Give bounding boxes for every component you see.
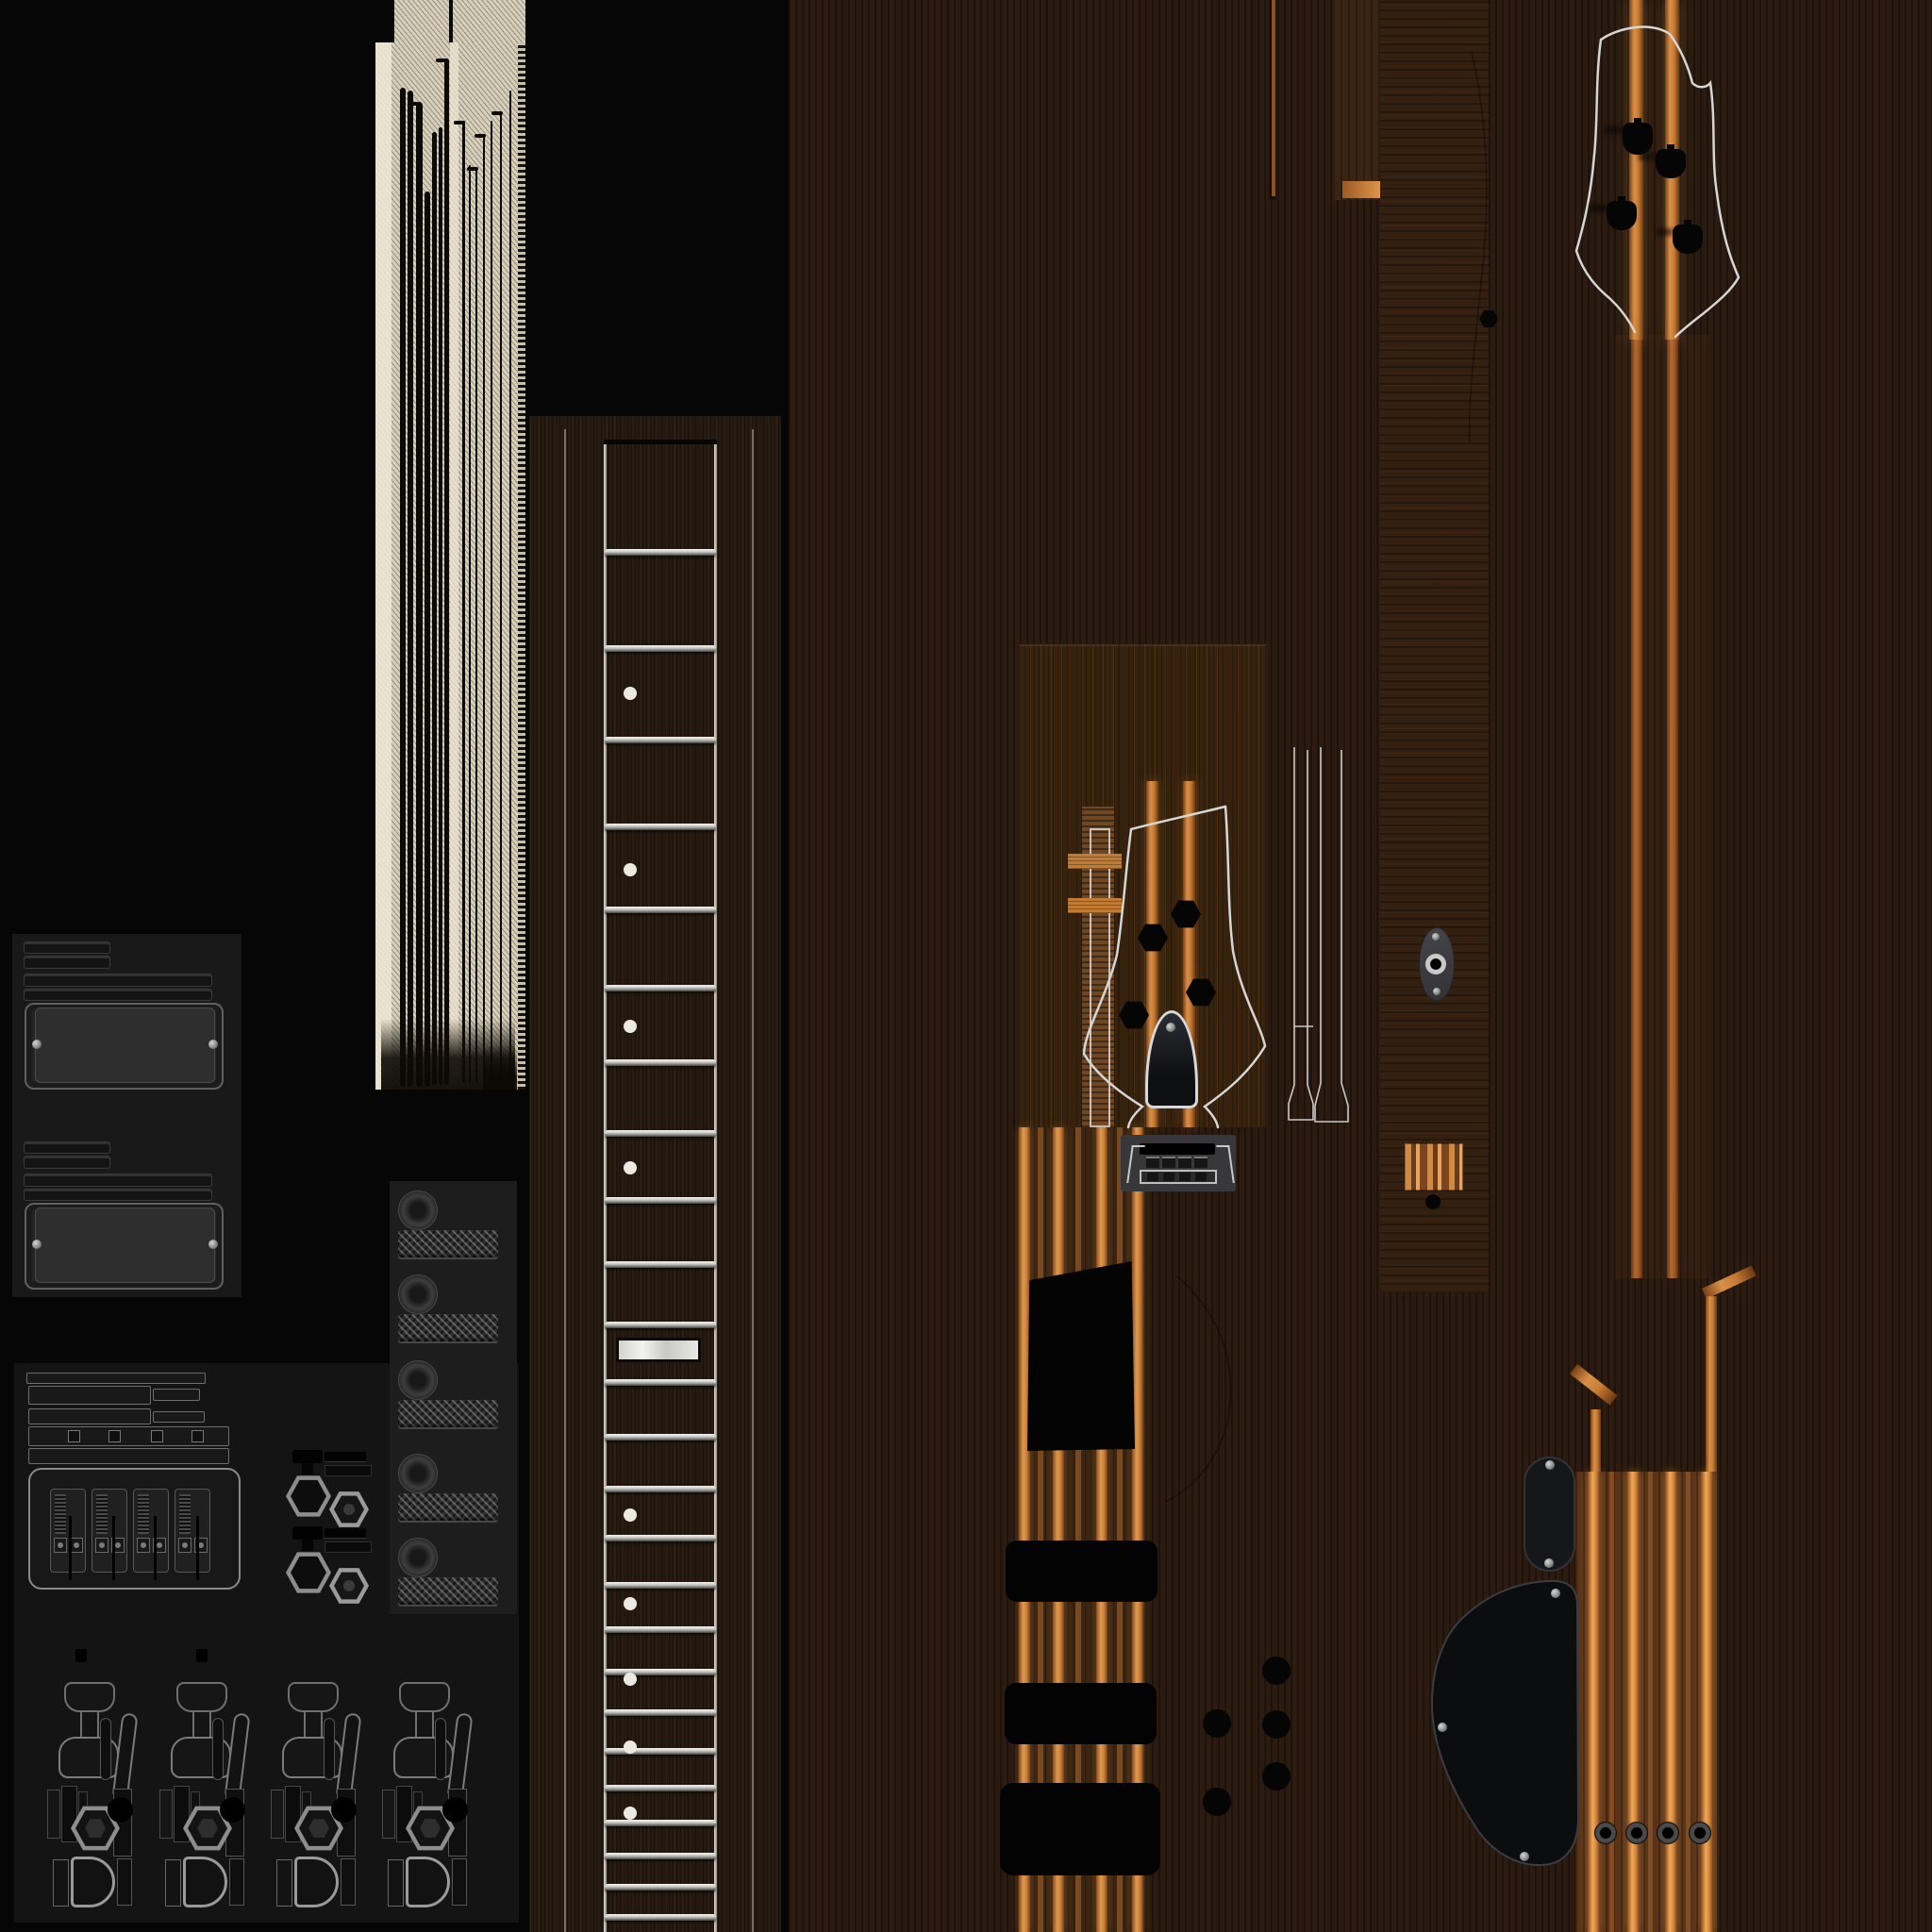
fret bbox=[605, 737, 716, 743]
string bbox=[483, 134, 485, 1083]
knob-knurl bbox=[398, 1493, 498, 1521]
laminate-stripe-dim bbox=[1648, 1472, 1653, 1932]
tuner-wing-top bbox=[176, 1682, 227, 1712]
patch-dot bbox=[1425, 1194, 1441, 1209]
saddle-screw-dot bbox=[99, 1542, 105, 1548]
tuner-base-block bbox=[388, 1859, 404, 1907]
panel-seam bbox=[1140, 644, 1141, 1127]
template-narrow-outline bbox=[1090, 828, 1110, 1127]
string bbox=[432, 132, 437, 1085]
tuner-base-block bbox=[276, 1859, 292, 1907]
wood-seam-orange bbox=[1272, 0, 1275, 196]
tuner-post-hole bbox=[331, 1797, 357, 1823]
string bbox=[462, 121, 465, 1083]
pickup-cover-face bbox=[35, 1008, 215, 1083]
bridge-string bbox=[154, 1516, 157, 1580]
tuner-pill bbox=[212, 1718, 224, 1780]
tuner-post-hole bbox=[220, 1797, 245, 1823]
crossband-bar bbox=[1068, 854, 1122, 869]
screw bbox=[32, 1240, 42, 1249]
pot-hole bbox=[1203, 1709, 1231, 1738]
fret bbox=[605, 1486, 716, 1492]
tuner-base-block bbox=[165, 1859, 181, 1907]
string bbox=[469, 165, 471, 1083]
laminate-hook-vertical bbox=[1706, 1296, 1717, 1477]
nut-side-bar bbox=[325, 1452, 366, 1462]
strings-serrated-edge bbox=[518, 42, 525, 1090]
pickup-side-bar bbox=[24, 974, 212, 987]
tuner-wing-top bbox=[288, 1682, 339, 1712]
laminate-stripe-dim bbox=[1686, 1472, 1690, 1932]
fret bbox=[605, 1197, 716, 1204]
fret bbox=[605, 1130, 716, 1137]
screw bbox=[1438, 1723, 1447, 1732]
tuner-waist bbox=[304, 1712, 323, 1737]
pot-hole bbox=[1203, 1788, 1231, 1816]
strings-center-band bbox=[450, 42, 458, 1090]
saddle-spring bbox=[55, 1494, 66, 1534]
bridge-part-notch bbox=[192, 1430, 204, 1442]
screw bbox=[1432, 933, 1440, 941]
fret bbox=[605, 1322, 716, 1328]
screw bbox=[1433, 988, 1441, 995]
tuner-button bbox=[1607, 201, 1637, 230]
string-ferrule bbox=[1594, 1822, 1617, 1844]
fret bbox=[605, 907, 716, 913]
string bbox=[491, 121, 492, 1083]
fret bbox=[605, 1820, 716, 1826]
fret bbox=[605, 1535, 716, 1541]
bridge-string bbox=[112, 1516, 115, 1580]
strings-top-divider bbox=[449, 0, 453, 43]
pickup-route bbox=[1000, 1783, 1160, 1875]
tuner-waist bbox=[80, 1712, 99, 1737]
string bbox=[439, 127, 442, 1085]
bridge-tail-bump bbox=[1147, 1173, 1158, 1181]
bridge-part-tab bbox=[153, 1411, 205, 1423]
fret bbox=[605, 1434, 716, 1441]
bridge-part-tab bbox=[153, 1389, 200, 1401]
nut-side-bar bbox=[325, 1465, 372, 1476]
fret bbox=[605, 1626, 716, 1633]
pickup-side-bar bbox=[24, 1189, 212, 1201]
saddle-screw-dot bbox=[115, 1542, 121, 1548]
pickup-route bbox=[1005, 1683, 1157, 1744]
knob-top bbox=[398, 1191, 438, 1230]
knob-top bbox=[398, 1360, 438, 1400]
string bbox=[475, 167, 477, 1083]
screw bbox=[1520, 1852, 1529, 1861]
fret bbox=[605, 1582, 716, 1589]
string bbox=[500, 111, 502, 1083]
screw bbox=[1551, 1589, 1560, 1598]
neck-heel-panel bbox=[1020, 644, 1266, 1127]
bridge-string bbox=[196, 1516, 199, 1580]
laminate-stripe-bright bbox=[1588, 1472, 1600, 1932]
tuner-button bbox=[1673, 225, 1703, 254]
fret bbox=[605, 824, 716, 830]
laminate-stripe-bright bbox=[1627, 1472, 1640, 1932]
screw bbox=[208, 1040, 218, 1049]
body-wood-base bbox=[789, 0, 1932, 1932]
string bbox=[509, 91, 511, 1083]
jack-nut bbox=[1425, 954, 1446, 974]
crossband-bar bbox=[1068, 898, 1122, 913]
bridge-part-bar bbox=[28, 1408, 151, 1424]
panel-seam bbox=[1118, 644, 1119, 1127]
inlay-dot bbox=[624, 687, 637, 700]
bridge-saddle-block bbox=[1162, 1157, 1175, 1168]
bridge-string bbox=[69, 1516, 72, 1580]
laminate-stripe-bright bbox=[1701, 1472, 1713, 1932]
string-stub bbox=[196, 1649, 208, 1662]
neck-laminate-stripe bbox=[1667, 335, 1678, 1278]
bridge-part-bar bbox=[26, 1373, 206, 1384]
fret bbox=[605, 1379, 716, 1386]
string bbox=[444, 58, 449, 1085]
fret bbox=[605, 1785, 716, 1791]
fret bbox=[605, 1884, 716, 1890]
bridge-tail-bump bbox=[1163, 1173, 1174, 1181]
tuner-button-shadow bbox=[1657, 228, 1673, 236]
truss-access-pill bbox=[1524, 1457, 1575, 1572]
fret bbox=[605, 1853, 716, 1859]
inlay-dot bbox=[624, 1597, 637, 1610]
pickup-side-bar bbox=[24, 941, 110, 954]
bridge-part-bar bbox=[28, 1386, 151, 1405]
inlay-dot bbox=[624, 1020, 637, 1033]
saddle-screw-dot bbox=[141, 1542, 146, 1548]
bridge-part-notch bbox=[108, 1430, 121, 1442]
fretboard-edge-line bbox=[564, 429, 566, 1932]
string-ferrule bbox=[1657, 1822, 1679, 1844]
wood-inlay-patch bbox=[1405, 1143, 1463, 1191]
texture-atlas bbox=[0, 0, 1932, 1932]
tuner-gear-block bbox=[382, 1790, 395, 1839]
bridge-saddle-block bbox=[1178, 1157, 1191, 1168]
screw bbox=[1545, 1460, 1555, 1470]
string-ferrule bbox=[1689, 1822, 1711, 1844]
bridge-saddle-block bbox=[1194, 1157, 1207, 1168]
tuner-base-block bbox=[117, 1858, 132, 1906]
neck-laminate-glow bbox=[1615, 335, 1709, 1278]
string bbox=[408, 91, 413, 1087]
knob-top bbox=[398, 1454, 438, 1493]
knob-knurl bbox=[398, 1400, 498, 1427]
neck-laminate-stripe bbox=[1631, 335, 1642, 1278]
fretboard-edge-line bbox=[752, 429, 754, 1932]
hex-washer-hole bbox=[343, 1580, 355, 1591]
string bbox=[400, 88, 406, 1087]
inlay-dot bbox=[624, 1673, 637, 1686]
pickup-side-bar bbox=[24, 1156, 110, 1169]
inlay-dot bbox=[624, 1508, 637, 1522]
saddle-screw-dot bbox=[157, 1542, 162, 1548]
inlay-dot bbox=[624, 1161, 637, 1174]
tuner-wing-top bbox=[399, 1682, 450, 1712]
saddle-screw-dot bbox=[58, 1542, 63, 1548]
tuner-gear-block bbox=[159, 1790, 173, 1839]
inlay-dot bbox=[624, 1807, 637, 1820]
hex-washer-hole bbox=[343, 1504, 355, 1515]
tuner-base-block bbox=[452, 1858, 467, 1906]
saddle-spring bbox=[179, 1494, 191, 1534]
knob-knurl bbox=[398, 1230, 498, 1257]
bridge-topbar bbox=[1140, 1143, 1215, 1155]
nut-post-stem bbox=[302, 1540, 313, 1551]
bridge-tail-bump bbox=[1195, 1173, 1207, 1181]
fret bbox=[605, 549, 716, 556]
tuner-button bbox=[1623, 123, 1653, 155]
strings-left-margin bbox=[375, 42, 391, 1090]
strings-top-segment bbox=[394, 0, 525, 43]
fretboard-texture bbox=[529, 416, 781, 1932]
pickup-cover-face bbox=[35, 1207, 215, 1283]
fret bbox=[605, 1748, 716, 1755]
pot-hole bbox=[1262, 1762, 1291, 1790]
saddle-spring bbox=[96, 1494, 108, 1534]
bridge-part-notch bbox=[151, 1430, 163, 1442]
string bbox=[416, 102, 423, 1087]
inlay-dot bbox=[624, 1740, 637, 1754]
knob-knurl bbox=[398, 1314, 498, 1341]
tuner-wing-top bbox=[64, 1682, 115, 1712]
screw bbox=[32, 1040, 42, 1049]
screw bbox=[208, 1240, 218, 1249]
nut-side-bar bbox=[325, 1541, 372, 1553]
string-stub bbox=[75, 1649, 87, 1662]
tuner-pill bbox=[435, 1718, 446, 1780]
laminate-stripe-bright bbox=[1665, 1472, 1677, 1932]
inlay-dot bbox=[624, 863, 637, 876]
fret bbox=[605, 1669, 716, 1675]
knob-top bbox=[398, 1538, 438, 1577]
pickup-side-bar bbox=[24, 956, 110, 969]
string bbox=[425, 192, 430, 1087]
headstock-laminate-stripe bbox=[1629, 0, 1643, 340]
screw bbox=[1544, 1558, 1554, 1568]
saddle-screw-dot bbox=[74, 1542, 79, 1548]
wood-cross-column bbox=[1380, 0, 1489, 1293]
tuner-base-block bbox=[229, 1858, 244, 1906]
fret bbox=[605, 985, 716, 991]
laminate-kink-vertical bbox=[1591, 1409, 1601, 1479]
pickup-side-bar bbox=[24, 989, 212, 1001]
fret bbox=[605, 645, 716, 652]
tuner-pill bbox=[100, 1718, 111, 1780]
knob-knurl bbox=[398, 1577, 498, 1605]
tuner-button bbox=[1656, 149, 1686, 178]
pot-hole bbox=[1262, 1657, 1291, 1685]
pickup-route bbox=[1006, 1541, 1158, 1602]
tuner-pill bbox=[324, 1718, 335, 1780]
laminate-stripe-dim bbox=[1609, 1472, 1614, 1932]
tuner-waist bbox=[415, 1712, 434, 1737]
screw bbox=[1166, 1023, 1175, 1032]
pot-hole bbox=[1262, 1710, 1291, 1739]
fret bbox=[605, 1261, 716, 1268]
pickup-side-bar bbox=[24, 1141, 110, 1154]
tuner-gear-block bbox=[271, 1790, 284, 1839]
knob-top bbox=[398, 1274, 438, 1314]
bridge-part-notch bbox=[68, 1430, 80, 1442]
tuner-base-block bbox=[53, 1859, 69, 1907]
pickup-side-bar bbox=[24, 1174, 212, 1187]
saddle-screw-dot bbox=[182, 1542, 188, 1548]
bridge-tail-bump bbox=[1179, 1173, 1191, 1181]
tuner-button-shadow bbox=[1605, 126, 1623, 134]
tuner-button-shadow bbox=[1590, 205, 1607, 212]
fret bbox=[605, 1709, 716, 1716]
nut-post-stem bbox=[302, 1463, 313, 1474]
nut-side-bar bbox=[325, 1528, 366, 1539]
cavity-cover-trapezoid bbox=[1027, 1261, 1135, 1451]
tuner-gear-block bbox=[47, 1790, 60, 1839]
fretboard-rail bbox=[714, 443, 717, 1932]
bridge-saddle-block bbox=[1146, 1157, 1159, 1168]
fretboard-nut-line bbox=[604, 440, 717, 444]
tuner-waist bbox=[192, 1712, 211, 1737]
tuner-post-hole bbox=[442, 1797, 468, 1823]
tuner-base-block bbox=[341, 1858, 356, 1906]
nut-post bbox=[292, 1526, 323, 1540]
strings-shadow-2 bbox=[483, 1045, 517, 1090]
inlay-block bbox=[616, 1338, 701, 1362]
nut-post bbox=[292, 1450, 323, 1463]
fret bbox=[605, 1059, 716, 1066]
bridge-part-bar bbox=[28, 1448, 229, 1464]
saddle-spring bbox=[138, 1494, 149, 1534]
tuner-post-hole bbox=[108, 1797, 133, 1823]
string-ferrule bbox=[1625, 1822, 1648, 1844]
fret bbox=[605, 1914, 716, 1921]
